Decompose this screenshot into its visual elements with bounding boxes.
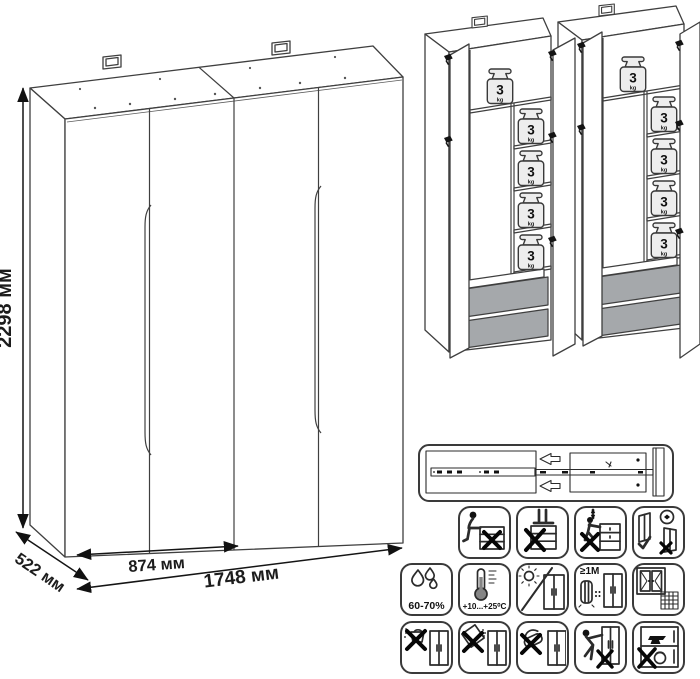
wall-bracket-icon [472, 16, 487, 28]
module-width-dimension-label: 874 мм [128, 554, 186, 576]
open-door-panel [450, 44, 469, 358]
wall-bracket-icon [272, 41, 290, 55]
open-door-middle [548, 38, 575, 356]
icon-no-direct-sunlight [516, 563, 569, 616]
temperature-label: +10...+25⁰C [460, 601, 509, 611]
shelf-load-3kg [487, 69, 512, 104]
shelf-load-3kg [518, 193, 543, 228]
icon-no-water-cleaning [400, 621, 453, 674]
total-width-dimension-label: 1748 мм [202, 563, 280, 593]
icon-no-standing [516, 506, 569, 559]
shelf-load-3kg [651, 181, 676, 216]
humidity-label: 60-70% [402, 600, 451, 612]
icon-no-climbing [574, 506, 627, 559]
wardrobe-left-side [30, 88, 65, 557]
open-wardrobe-module-right [558, 4, 684, 346]
icon-anchor-to-wall [632, 506, 685, 559]
open-wardrobe-module-left [425, 16, 551, 358]
heat-distance-label: ≥1M [580, 566, 599, 577]
shelf-load-3kg [651, 97, 676, 132]
icon-no-sitting [458, 506, 511, 559]
shelf-load-3kg [518, 109, 543, 144]
module-left-side [425, 34, 449, 352]
height-dimension-label: 2298 мм [0, 268, 16, 348]
drawer-slide-panel [418, 444, 674, 502]
icon-no-dragging [574, 621, 627, 674]
closed-wardrobe-view [30, 41, 403, 557]
icon-temperature-range: +10...+25⁰C [458, 563, 511, 616]
shelf-load-3kg [518, 235, 543, 270]
icon-distance-from-heat: ≥1M [574, 563, 627, 616]
shelf-load-3kg [651, 223, 676, 258]
wardrobe-technical-diagram: 3 kg 2298 мм 522 мм [0, 0, 700, 679]
icon-no-heavy-objects [632, 621, 685, 674]
wall-bracket-icon [599, 4, 614, 16]
shelf-load-3kg [518, 151, 543, 186]
drawer-slide-illustration [420, 446, 670, 498]
icon-humidity-range: 60-70% [400, 563, 453, 616]
icon-no-spilling-liquids [458, 621, 511, 674]
depth-dimension-label: 522 мм [11, 550, 68, 597]
shelf-load-3kg [651, 139, 676, 174]
wall-bracket-icon [103, 55, 121, 69]
icon-no-abrasive-cleaning [516, 621, 569, 674]
icon-ventilate-room [632, 563, 685, 616]
shelf-load-3kg [620, 57, 645, 92]
open-door-panel [583, 32, 602, 346]
